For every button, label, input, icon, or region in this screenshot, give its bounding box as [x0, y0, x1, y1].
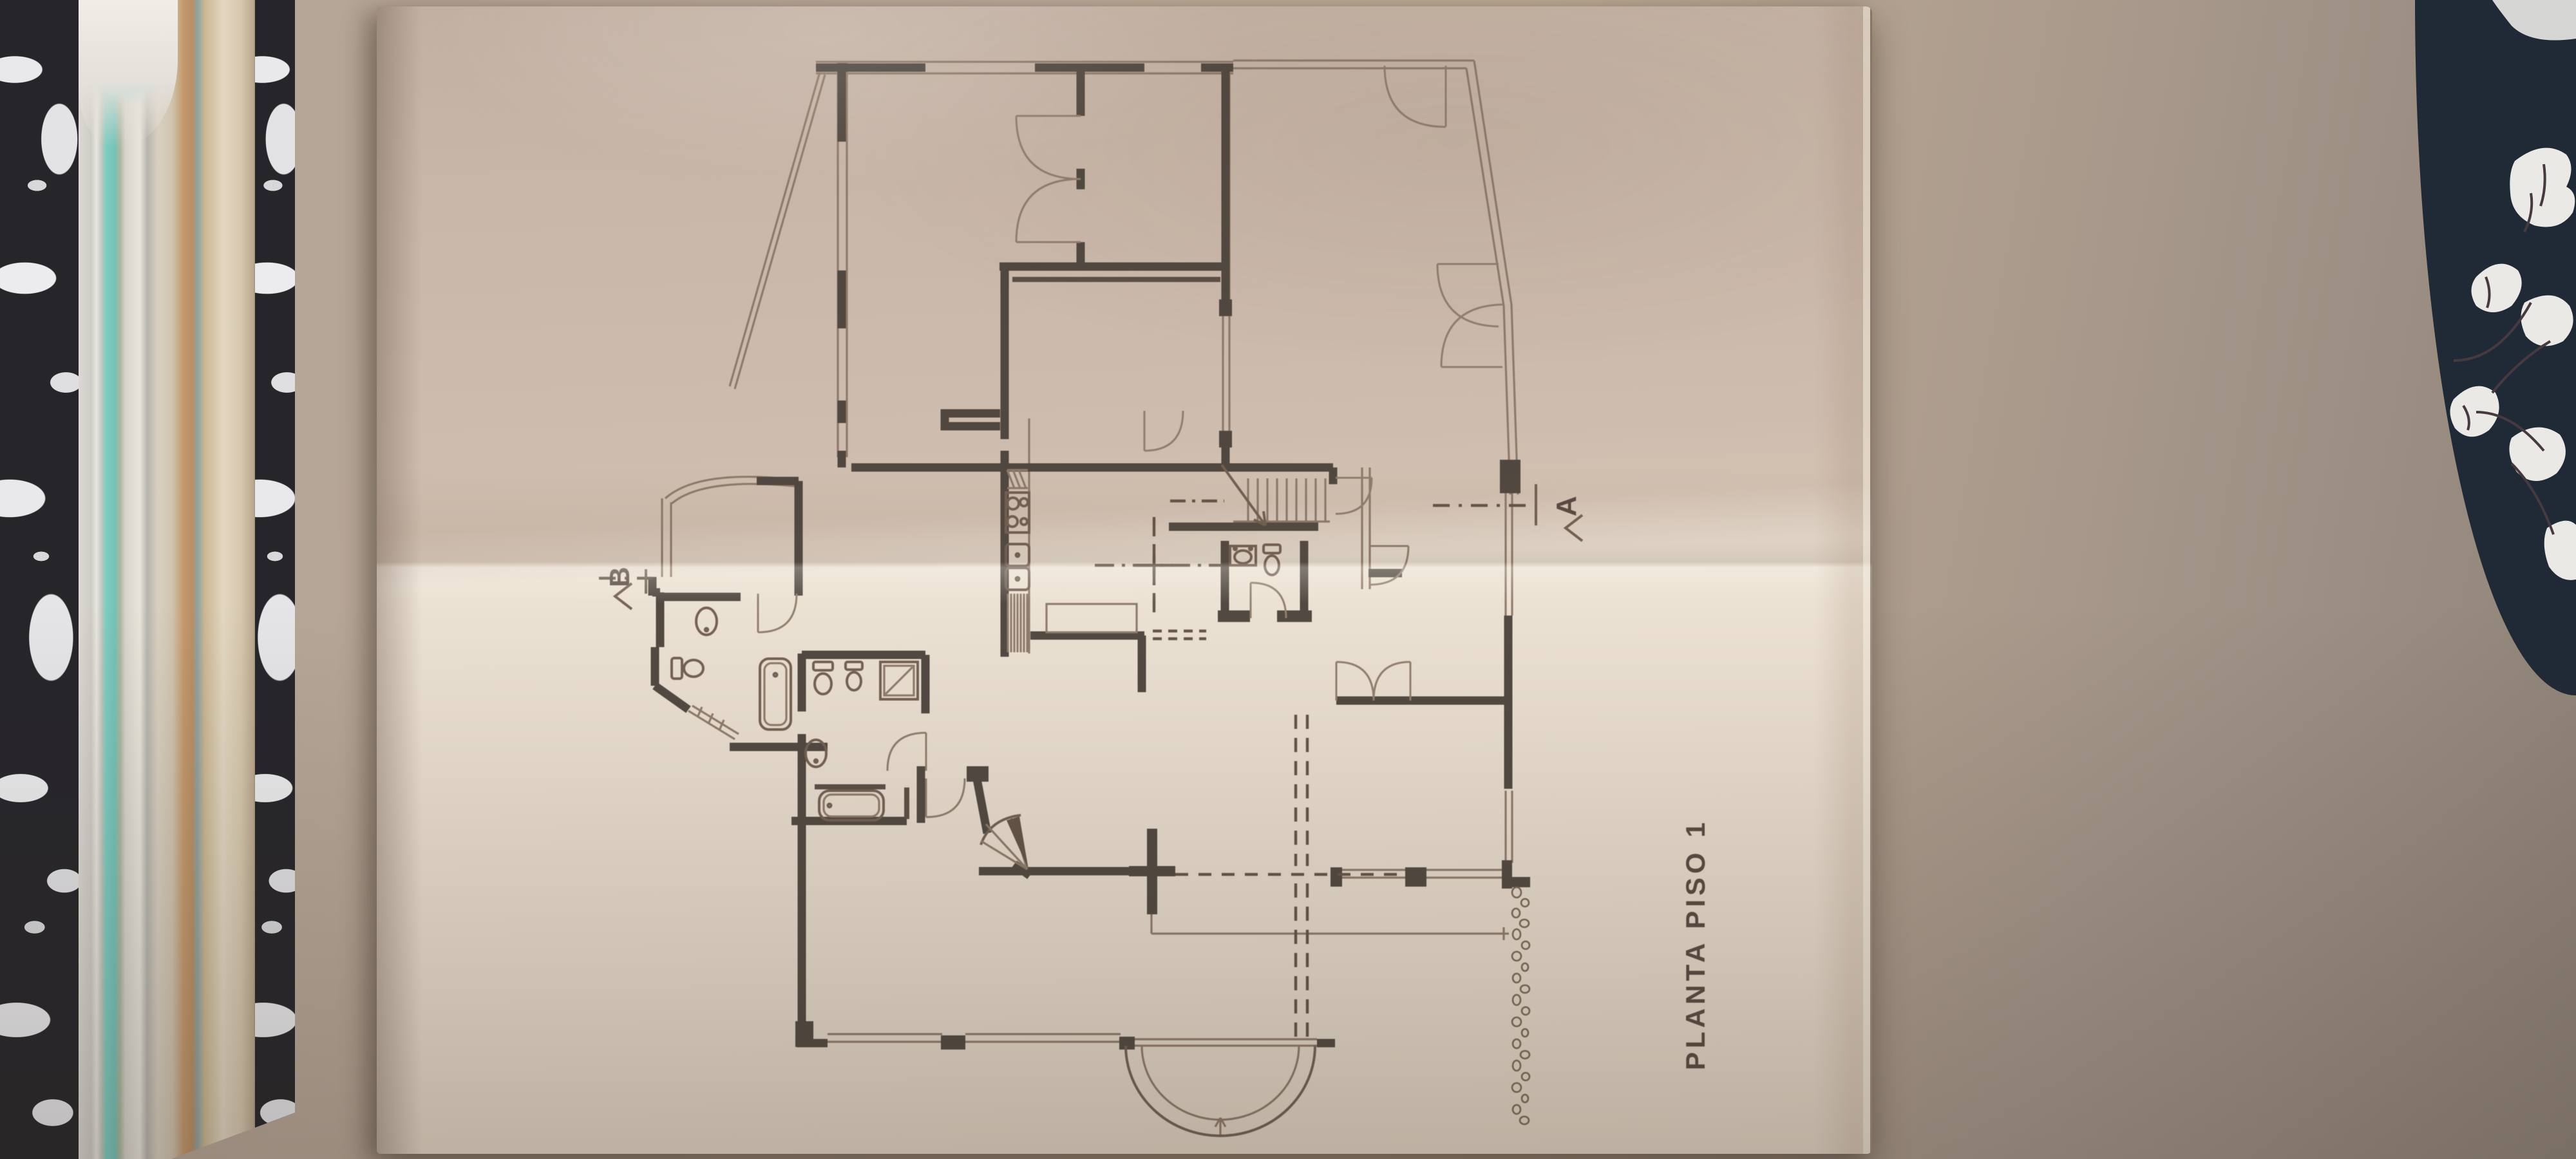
windows-thin-lines: [662, 61, 1518, 1046]
entry-steps: [688, 706, 739, 739]
kitchen-fixtures: [1006, 470, 1137, 652]
section-marker-b: B: [604, 567, 636, 609]
fabric-floral-pattern: [2415, 0, 2576, 695]
stair-direction-arrow: [1222, 465, 1265, 525]
plan-title: PLANTA PISO 1: [1680, 818, 1710, 1070]
hidden-dashed-lines: [1095, 517, 1401, 1038]
book-page-stack: [79, 0, 259, 1159]
section-a-label: A: [1551, 496, 1582, 516]
floor-plan-drawing: A B PLANTA PISO 1: [377, 6, 1872, 1154]
section-marker-a: A: [1551, 496, 1582, 541]
exterior-walls: [652, 63, 1530, 1050]
binder-book: [0, 0, 295, 1159]
floorplan-sheet: A B PLANTA PISO 1: [377, 6, 1872, 1154]
book-front-cover: [0, 0, 82, 1159]
book-back-cover: [255, 0, 295, 1159]
stone-wall-hatch: [1512, 887, 1529, 1124]
staircase: [1170, 465, 1330, 525]
section-a-arrow-icon: [1566, 515, 1582, 541]
upholstered-chair-fabric: [2415, 0, 2576, 695]
entrance-step-arc: [1126, 1046, 1315, 1136]
photo-of-floorplan-scene: A B PLANTA PISO 1: [0, 0, 2576, 1159]
